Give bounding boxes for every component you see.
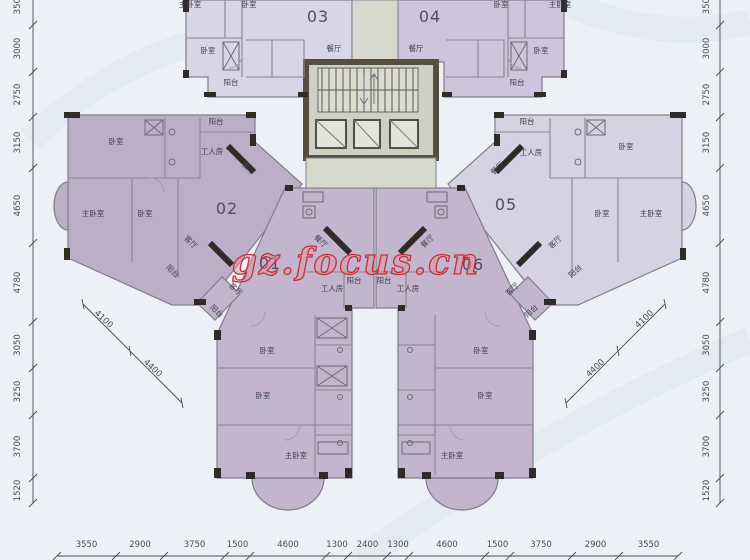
swirl-curve (560, 0, 750, 30)
room-label: 卧室 (494, 0, 509, 9)
watermark-text: gz.focus.cn (232, 241, 481, 283)
dimension-label: 4100 (633, 309, 656, 331)
dimension-label: 3750 (530, 540, 552, 550)
room-label: 卧室 (138, 208, 153, 218)
room-label: 主卧室 (82, 208, 105, 218)
stairwell-upper (352, 0, 398, 62)
dimension-label: 3000 (702, 38, 712, 60)
watermark: gz.focus.cn (232, 241, 481, 283)
dimension-tick (129, 346, 131, 356)
dimension-label: 3750 (184, 540, 206, 550)
floor-plan-canvas: 主卧室卧室卧室阳台餐厅餐厅阳台卧室卧室主卧室阳台卧室工人房餐厅主卧室卧室客厅阳台… (0, 0, 750, 560)
lift-lobby (306, 158, 436, 188)
dimension-label: 2400 (357, 540, 379, 550)
dimension-label: 1500 (227, 540, 249, 550)
room-label: 卧室 (109, 136, 124, 146)
room-label: 阳台 (209, 116, 224, 126)
room-label: 餐厅 (409, 44, 424, 53)
unit-number: 03 (307, 7, 329, 26)
room-label: 主卧室 (179, 0, 202, 9)
dimension-label: 1500 (487, 540, 509, 550)
room-label: 主卧室 (441, 450, 464, 460)
room-label: 主卧室 (549, 0, 572, 9)
room-label: 卧室 (201, 45, 216, 55)
dimension-label: 1520 (13, 480, 23, 502)
dimension-tick (565, 398, 567, 408)
dimension-label: 4600 (277, 540, 299, 550)
dimension-label: 3700 (702, 436, 712, 458)
dimension-label: 1300 (326, 540, 348, 550)
room-label: 卧室 (474, 345, 489, 355)
room-label: 工人房 (520, 147, 543, 157)
dimension-label: 2900 (129, 540, 151, 550)
dimension-label: 4780 (702, 272, 712, 294)
side-bay-right (682, 182, 696, 230)
room-label: 卧室 (260, 345, 275, 355)
room-label: 卧室 (478, 390, 493, 400)
dimension-label: 4780 (13, 272, 23, 294)
dimension-label: 3150 (13, 132, 23, 154)
room-label: 工人房 (201, 146, 224, 156)
room-label: 主卧室 (640, 208, 663, 218)
dimension-label: 3000 (13, 38, 23, 60)
dimension-label: 3250 (702, 381, 712, 403)
dimension-label: 4400 (141, 358, 164, 380)
dimension-label: 3550 (76, 540, 98, 550)
room-label: 卧室 (256, 390, 271, 400)
room-label: 卧室 (619, 141, 634, 151)
dimension-label: 2900 (585, 540, 607, 550)
dimension-label: 2750 (13, 84, 23, 106)
room-label: 卧室 (534, 45, 549, 55)
dimension-tick (664, 299, 666, 309)
dimension-tick (617, 346, 619, 356)
dimension-label: 3700 (13, 436, 23, 458)
dimension-label: 3150 (702, 132, 712, 154)
unit-number: 02 (216, 199, 238, 218)
floor-plan-svg: 主卧室卧室卧室阳台餐厅餐厅阳台卧室卧室主卧室阳台卧室工人房餐厅主卧室卧室客厅阳台… (0, 0, 750, 560)
room-label: 工人房 (321, 283, 344, 293)
room-label: 阳台 (520, 116, 535, 126)
unit-number: 05 (495, 195, 517, 214)
dimension-label: 3550 (638, 540, 660, 550)
room-label: 工人房 (397, 283, 420, 293)
dimension-tick (181, 398, 183, 408)
dimension-label: 4650 (702, 195, 712, 217)
room-label: 餐厅 (327, 44, 342, 53)
unit-number: 04 (419, 7, 441, 26)
dimension-label: 1300 (387, 540, 409, 550)
dimension-label: 3500 (13, 0, 23, 14)
room-label: 卧室 (595, 208, 610, 218)
dimension-label: 3050 (13, 334, 23, 356)
dimension-label: 4100 (92, 309, 115, 331)
dimension-label: 3500 (702, 0, 712, 14)
dimension-label: 3250 (13, 381, 23, 403)
dimension-label: 3050 (702, 334, 712, 356)
room-label: 阳台 (224, 77, 239, 87)
room-label: 阳台 (510, 77, 525, 87)
dimension-label: 4600 (436, 540, 458, 550)
side-bay-left (54, 182, 68, 230)
dimension-label: 4400 (584, 358, 607, 380)
room-label: 主卧室 (285, 450, 308, 460)
dimension-label: 4650 (13, 195, 23, 217)
dimension-tick (82, 299, 84, 309)
dimension-label: 1520 (702, 480, 712, 502)
bow-window-unit-01 (252, 478, 324, 510)
room-label: 卧室 (242, 0, 257, 9)
dimension-label: 2750 (702, 84, 712, 106)
